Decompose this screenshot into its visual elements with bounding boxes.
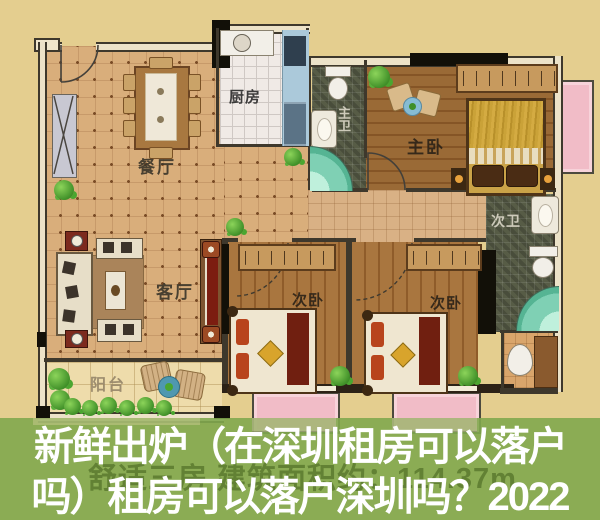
plant <box>368 66 390 88</box>
cover-title-line1: 新鲜出炉（在深圳租房可以落户 <box>0 427 600 467</box>
bed-pillow <box>236 353 249 379</box>
plant <box>119 400 135 416</box>
dining-chair <box>123 97 136 114</box>
chaise <box>96 238 143 259</box>
coffee-table <box>105 271 126 310</box>
sofa-cushion <box>65 285 79 299</box>
bed-pillow <box>236 319 249 345</box>
round-table <box>403 97 422 116</box>
toilet-tank <box>325 66 351 77</box>
bedroom-a-wardrobe <box>238 244 336 271</box>
table-plant <box>165 383 173 391</box>
wc-shelf <box>534 336 558 388</box>
dining-chair <box>123 120 136 137</box>
plant <box>458 366 478 386</box>
bed-duvet <box>469 101 543 149</box>
plant <box>82 400 98 416</box>
bed-diamond <box>257 340 284 367</box>
bedroom-b-bed <box>364 312 448 394</box>
kitchen-cabinet <box>284 102 306 146</box>
plant <box>137 397 154 414</box>
sink-basin <box>538 204 553 227</box>
sofa-cushion <box>121 242 132 253</box>
table-runner <box>145 73 177 141</box>
room-label-master-bedroom: 主卧 <box>407 133 445 158</box>
bed-pillow <box>371 355 384 380</box>
plant <box>156 400 172 416</box>
love-seat <box>97 319 142 342</box>
wc-toilet <box>507 344 533 376</box>
sofa-cushion <box>123 324 134 335</box>
tv-panel <box>205 257 218 325</box>
tv-speaker <box>202 326 220 343</box>
toilet-bowl <box>532 257 554 278</box>
bed-pillow <box>506 165 538 187</box>
nightstand <box>451 168 466 190</box>
bed-post <box>362 385 373 396</box>
master-wardrobe <box>456 64 558 93</box>
kitchen-cabinet <box>284 36 306 66</box>
plant <box>226 218 244 236</box>
sofa-cushion <box>62 309 76 323</box>
dining-chair <box>123 74 136 91</box>
room-label-dining: 餐厅 <box>138 153 176 178</box>
bed-blanket <box>419 317 440 385</box>
table-decor <box>111 285 120 296</box>
balcony-table <box>158 376 180 398</box>
entry-door-arc <box>61 45 98 82</box>
room-label-second-bath: 次卫 <box>491 211 521 231</box>
plate <box>157 88 164 95</box>
bed-band <box>469 148 543 164</box>
dining-table <box>134 66 190 150</box>
sofa-cushion <box>105 324 116 335</box>
bed-post <box>362 310 373 321</box>
plant <box>284 148 302 166</box>
side-table <box>65 231 88 251</box>
dining-chair <box>149 57 173 69</box>
bath-sink <box>531 196 559 234</box>
dining-chair <box>188 120 201 137</box>
dining-chair <box>188 97 201 114</box>
master-bed <box>466 98 546 196</box>
bed-post <box>227 306 238 317</box>
bed-post <box>227 385 238 396</box>
room-label-living: 客厅 <box>156 278 194 303</box>
lamp <box>455 175 463 183</box>
bed-blanket <box>287 313 309 385</box>
toilet-bowl <box>328 77 348 100</box>
sofa-cushion <box>103 242 114 253</box>
main-sofa <box>56 252 93 336</box>
bedroom-b-door-arc <box>355 243 412 300</box>
bed-diamond <box>390 342 415 367</box>
master-door-arc <box>368 153 405 190</box>
dining-chair <box>188 74 201 91</box>
lamp <box>71 235 83 247</box>
title-overlay: 舒适三房 建筑面积约：114.37m 新鲜出炉（在深圳租房可以落户 吗）租房可以… <box>0 418 600 520</box>
bed-pillow <box>371 322 384 347</box>
bedroom-b-wardrobe <box>406 244 482 271</box>
toilet-tank <box>529 246 558 257</box>
plate <box>157 116 164 123</box>
room-label-bedroom-b: 次卧 <box>430 292 462 313</box>
tv-speaker <box>202 241 220 258</box>
lamp <box>544 175 552 183</box>
ghost-balcony-edge <box>33 418 200 425</box>
side-table <box>65 330 88 348</box>
kitchen-sink-counter <box>220 30 274 56</box>
room-label-kitchen: 厨房 <box>229 86 261 107</box>
table-plant <box>409 103 416 110</box>
nightstand <box>540 168 555 190</box>
plant <box>54 180 74 200</box>
plant <box>100 397 117 414</box>
article-cover-image: 餐厅 厨房 主卫 主卧 次卫 客厅 次卧 次卧 阳台 舒适三房 建筑面积约：11… <box>0 0 600 520</box>
lamp <box>71 333 83 345</box>
room-label-balcony: 阳台 <box>90 371 126 395</box>
sink-basin <box>317 118 332 141</box>
shaft-x-mark <box>54 96 73 174</box>
cover-title-line2: 吗）租房可以落户深圳吗？2022 <box>0 477 600 517</box>
bedroom-a-bed <box>229 308 317 394</box>
room-label-master-bath: 主卫 <box>334 106 353 132</box>
plant <box>330 366 350 386</box>
room-label-bedroom-a: 次卧 <box>292 289 324 310</box>
sofa-cushion <box>62 261 76 275</box>
plant <box>48 368 70 390</box>
kitchen-sink <box>233 34 251 52</box>
bed-pillow <box>472 165 504 187</box>
plant <box>64 398 81 415</box>
